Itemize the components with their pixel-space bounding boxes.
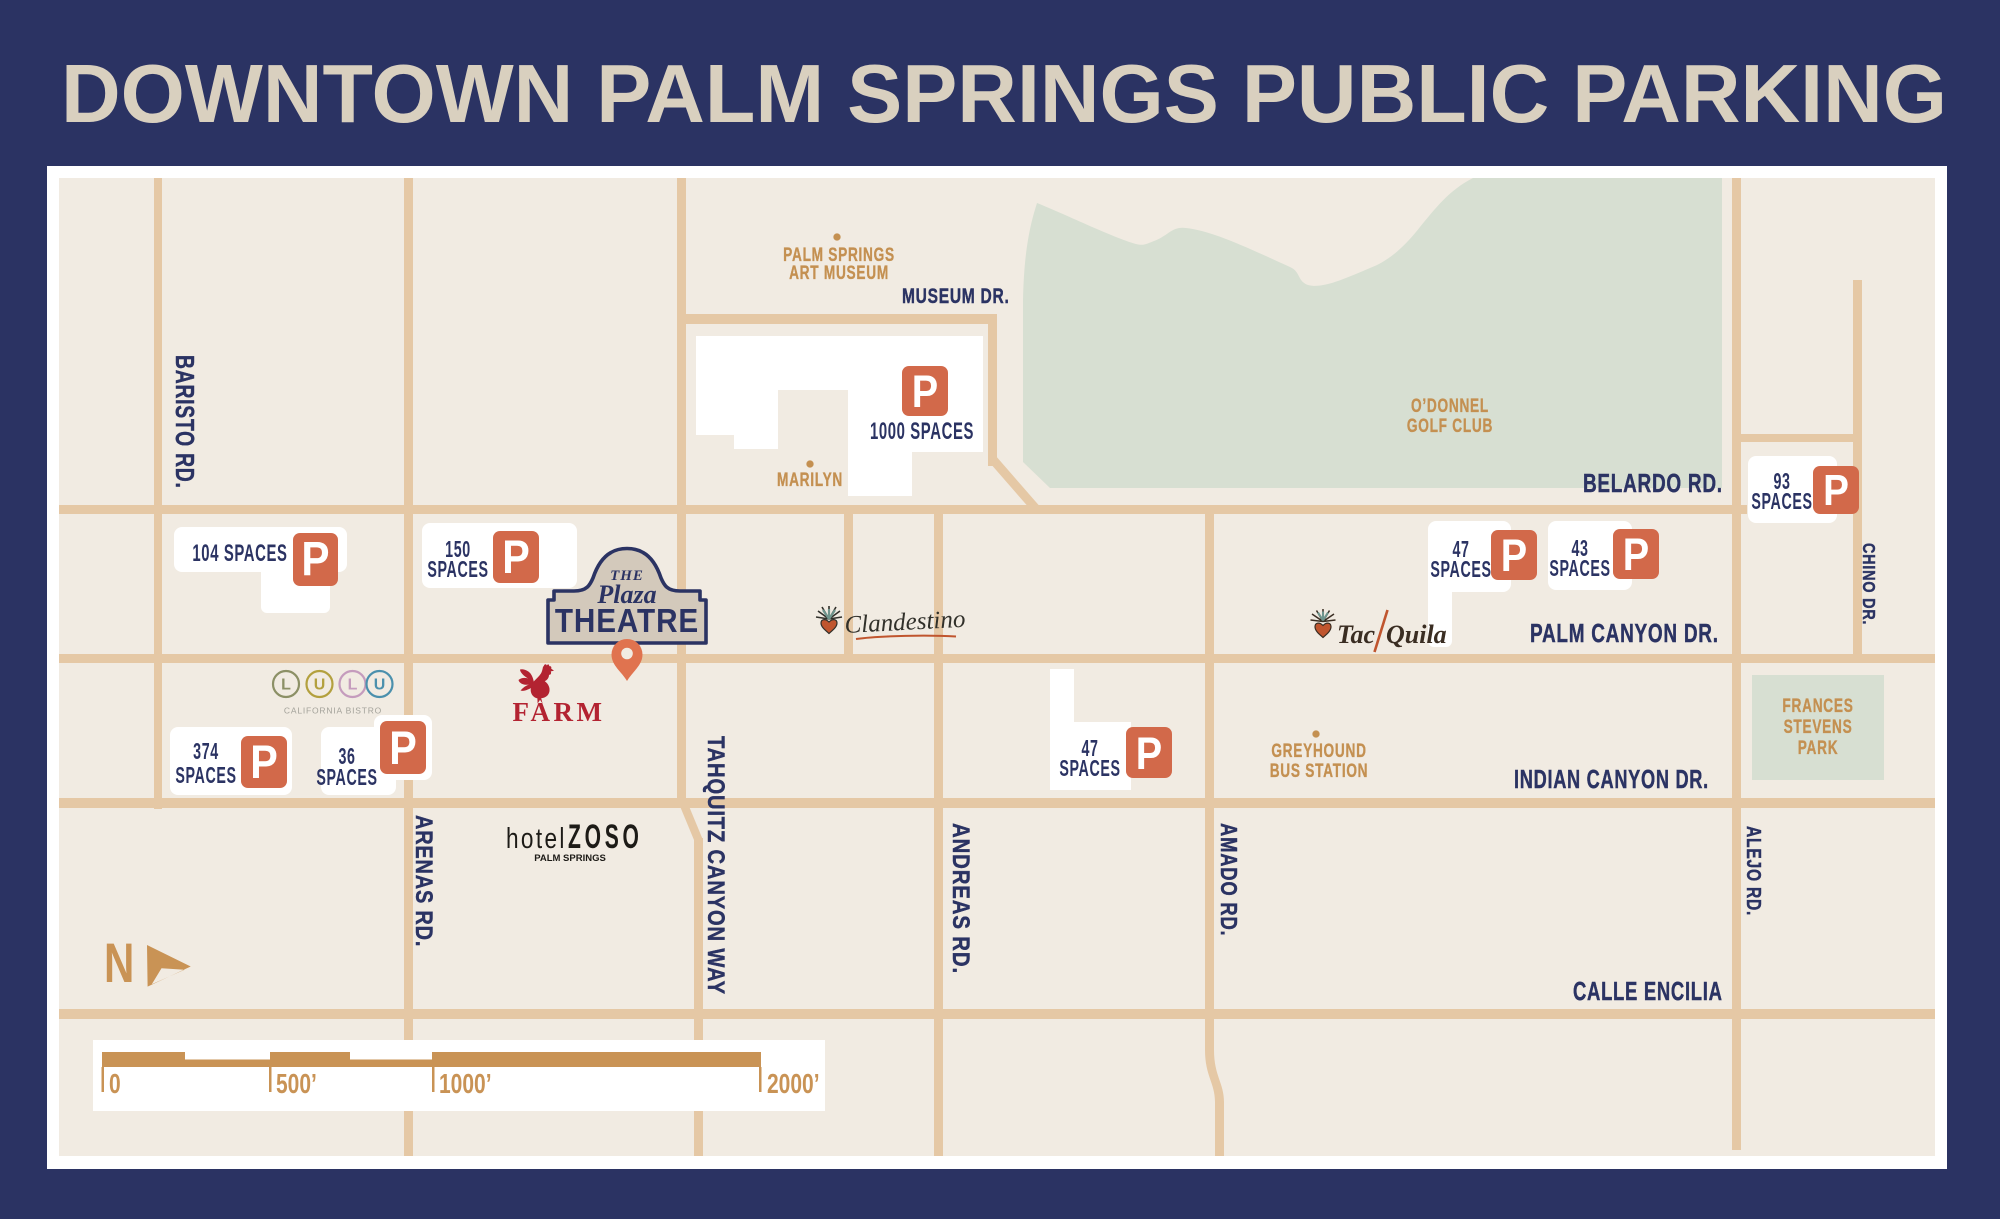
svg-text:P: P <box>301 531 329 585</box>
svg-text:U: U <box>314 677 326 694</box>
svg-text:Quila: Quila <box>1386 620 1447 649</box>
svg-text:1000’: 1000’ <box>439 1069 492 1100</box>
svg-text:SPACES: SPACES <box>316 766 377 791</box>
svg-text:500’: 500’ <box>276 1069 317 1100</box>
svg-text:P: P <box>389 723 417 775</box>
svg-text:P: P <box>912 367 938 417</box>
svg-text:ANDREAS RD.: ANDREAS RD. <box>948 823 975 974</box>
svg-text:SPACES: SPACES <box>1430 558 1491 583</box>
svg-text:MUSEUM DR.: MUSEUM DR. <box>902 284 1010 308</box>
svg-text:SPACES: SPACES <box>1751 490 1812 515</box>
svg-text:CALLE ENCILIA: CALLE ENCILIA <box>1573 977 1723 1006</box>
svg-text:ART MUSEUM: ART MUSEUM <box>789 262 889 284</box>
svg-text:SPACES: SPACES <box>1059 757 1120 782</box>
svg-text:FARM: FARM <box>513 697 606 727</box>
svg-text:P: P <box>1623 530 1649 580</box>
svg-text:L: L <box>281 677 291 694</box>
svg-text:BELARDO RD.: BELARDO RD. <box>1583 468 1723 498</box>
svg-text:Tac: Tac <box>1337 620 1375 649</box>
svg-text:O’DONNEL: O’DONNEL <box>1411 395 1489 417</box>
svg-text:1000 SPACES: 1000 SPACES <box>870 419 974 445</box>
svg-text:INDIAN CANYON DR.: INDIAN CANYON DR. <box>1514 765 1709 794</box>
svg-text:TAHQUITZ CANYON WAY: TAHQUITZ CANYON WAY <box>703 736 730 995</box>
svg-text:P: P <box>1501 531 1527 581</box>
svg-text:ARENAS RD.: ARENAS RD. <box>411 815 438 947</box>
svg-text:BARISTO RD.: BARISTO RD. <box>170 355 199 489</box>
svg-text:STEVENS: STEVENS <box>1784 716 1853 738</box>
svg-text:ALEJO RD.: ALEJO RD. <box>1743 826 1765 916</box>
svg-text:FRANCES: FRANCES <box>1782 695 1853 717</box>
svg-text:374: 374 <box>193 740 219 765</box>
svg-text:MARILYN: MARILYN <box>777 469 843 491</box>
svg-text:SPACES: SPACES <box>427 558 488 583</box>
svg-text:hotel: hotel <box>506 821 567 854</box>
svg-text:L: L <box>348 677 358 694</box>
svg-text:AMADO RD.: AMADO RD. <box>1215 823 1240 936</box>
svg-text:PALM SPRINGS: PALM SPRINGS <box>534 853 606 864</box>
svg-text:ZOSO: ZOSO <box>568 817 643 855</box>
svg-text:P: P <box>1136 729 1162 779</box>
svg-text:P: P <box>502 532 530 584</box>
svg-text:SPACES: SPACES <box>175 764 236 789</box>
svg-text:CALIFORNIA BISTRO: CALIFORNIA BISTRO <box>284 706 382 716</box>
svg-text:0: 0 <box>109 1069 121 1100</box>
svg-text:N: N <box>104 932 134 994</box>
svg-text:CHINO DR.: CHINO DR. <box>1859 543 1879 625</box>
svg-text:2000’: 2000’ <box>767 1069 820 1100</box>
svg-text:GREYHOUND: GREYHOUND <box>1271 740 1366 762</box>
svg-text:BUS STATION: BUS STATION <box>1270 760 1369 782</box>
svg-text:PARK: PARK <box>1798 737 1839 759</box>
svg-text:THEATRE: THEATRE <box>555 603 699 640</box>
svg-text:104 SPACES: 104 SPACES <box>192 541 287 567</box>
svg-text:DOWNTOWN PALM SPRINGS PUBLIC P: DOWNTOWN PALM SPRINGS PUBLIC PARKING <box>61 47 1947 140</box>
svg-text:SPACES: SPACES <box>1549 557 1610 582</box>
svg-text:U: U <box>374 677 386 694</box>
svg-text:GOLF CLUB: GOLF CLUB <box>1407 415 1493 437</box>
svg-text:P: P <box>1823 465 1849 515</box>
svg-text:P: P <box>250 737 278 789</box>
svg-text:PALM CANYON DR.: PALM CANYON DR. <box>1530 618 1719 648</box>
